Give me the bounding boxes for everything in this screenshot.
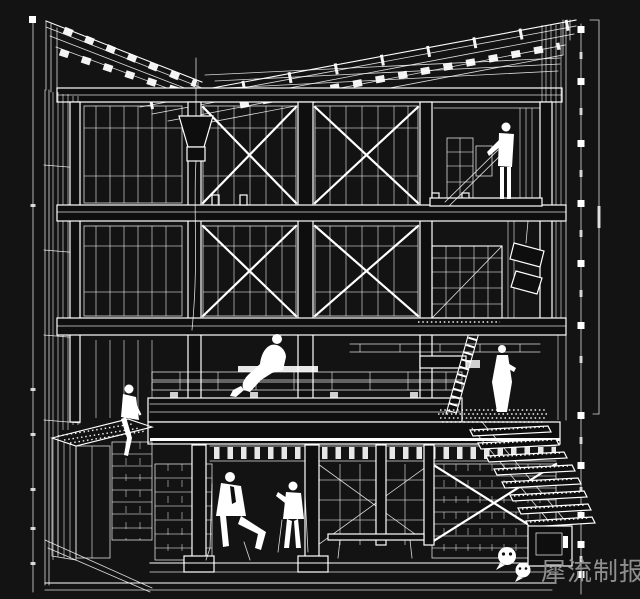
hanging-duct: [510, 221, 544, 294]
watermark-text: 犀流制报: [541, 557, 640, 586]
right-dimension-line: [590, 20, 601, 414]
columns: [70, 102, 552, 422]
basement-back-frame: [318, 464, 430, 545]
wechat-icon: [496, 547, 531, 582]
braced-bay-2-floor1: [203, 106, 296, 205]
braced-bay-3-floor2: [315, 226, 418, 316]
left-margin-line: [29, 16, 36, 592]
figure-standing-lower-right: [492, 345, 516, 412]
braced-bay-2-floor2: [203, 226, 296, 316]
floor-band-level3: [57, 318, 566, 335]
figure-seated-man-left: [206, 472, 266, 560]
section-perspective-canvas: 犀流制报: [0, 0, 640, 599]
basement-bench: [328, 534, 424, 558]
eaves-beam: [57, 88, 562, 102]
scaffold-shelving: [432, 221, 514, 318]
figure-sitting-center: [230, 334, 286, 397]
window-bay-1-floor1: [84, 106, 182, 203]
architectural-section-drawing: 犀流制报: [0, 0, 640, 599]
window-bay-1-floor2: [84, 226, 182, 316]
planter-box: [52, 419, 152, 560]
figure-standing-mezzanine: [487, 123, 514, 200]
mezzanine-upper-right: [430, 108, 542, 206]
figure-seated-man-right: [276, 482, 308, 553]
left-wall-studs: [44, 90, 152, 592]
braced-bay-3-floor1: [315, 106, 418, 205]
third-level-railing: [350, 344, 540, 352]
